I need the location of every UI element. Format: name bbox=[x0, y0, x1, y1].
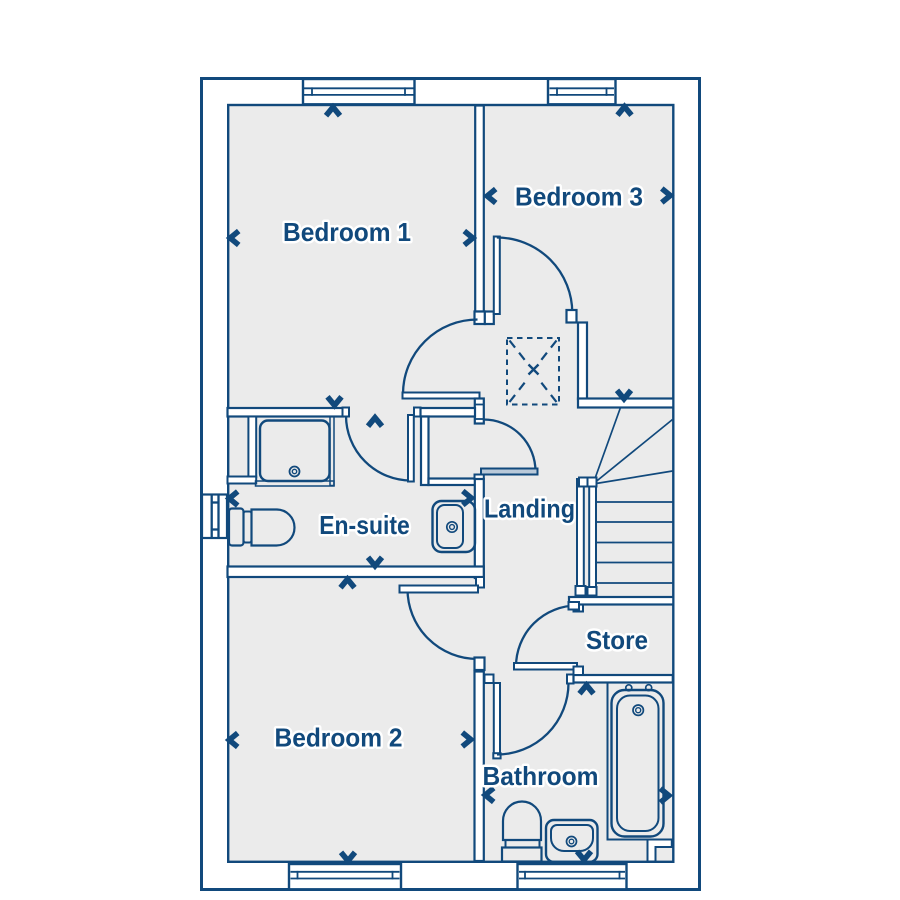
svg-text:Store: Store bbox=[586, 625, 648, 655]
svg-text:Bedroom 3: Bedroom 3 bbox=[515, 182, 643, 212]
svg-text:Bedroom 1: Bedroom 1 bbox=[283, 217, 411, 247]
svg-text:Bedroom 2: Bedroom 2 bbox=[275, 723, 403, 753]
svg-text:En-suite: En-suite bbox=[319, 510, 410, 540]
svg-text:Landing: Landing bbox=[484, 494, 575, 524]
svg-text:Bathroom: Bathroom bbox=[483, 761, 599, 791]
